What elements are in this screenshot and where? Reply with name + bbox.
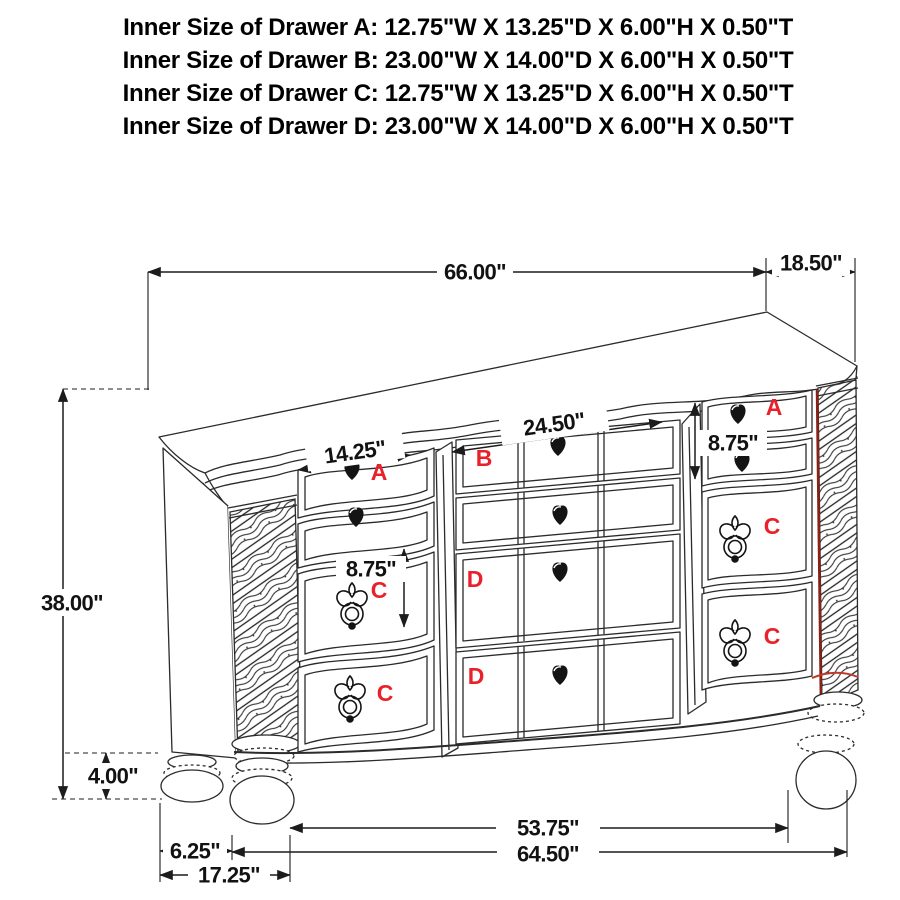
left-spiral-column xyxy=(228,495,302,764)
front-left-foot xyxy=(230,758,294,824)
dim-side-foot-inset: 6.25" xyxy=(170,839,220,864)
drawer-label-a-right: A xyxy=(766,394,783,420)
dresser-dimension-diagram-page: Inner Size of Drawer A: 12.75"W X 13.25"… xyxy=(0,0,900,900)
spec-header: Inner Size of Drawer A: 12.75"W X 13.25"… xyxy=(123,14,794,140)
dim-right-drawer-stack-height: 8.75" xyxy=(708,431,758,456)
dim-overall-width: 66.00" xyxy=(444,260,506,285)
drawer-label-d-middle: D xyxy=(467,566,484,592)
side-left-foot xyxy=(161,755,223,802)
drawer-label-c-right-bottom: C xyxy=(764,623,781,649)
drawer-label-a-left: A xyxy=(371,459,388,485)
dresser-drawing xyxy=(159,312,864,824)
drawer-label-c-right-middle: C xyxy=(764,513,781,539)
spec-line-drawer-b: Inner Size of Drawer B: 23.00"W X 14.00"… xyxy=(123,47,794,74)
spec-line-drawer-a: Inner Size of Drawer A: 12.75"W X 13.25"… xyxy=(123,14,794,41)
dim-overall-height: 38.00" xyxy=(41,591,103,616)
dresser-diagram-svg: Inner Size of Drawer A: 12.75"W X 13.25"… xyxy=(0,0,900,900)
dim-foot-height: 4.00" xyxy=(88,764,138,789)
spec-line-drawer-c: Inner Size of Drawer C: 12.75"W X 13.25"… xyxy=(123,80,794,107)
left-side-panel xyxy=(163,448,236,758)
drawer-label-c-left-middle: C xyxy=(371,577,388,603)
dim-front-feet-span: 53.75" xyxy=(517,816,579,841)
dim-base-width: 64.50" xyxy=(517,842,579,867)
drawer-label-c-left-bottom: C xyxy=(377,680,394,706)
drawer-label-d-bottom: D xyxy=(468,663,485,689)
dim-top-depth: 18.50" xyxy=(780,251,842,276)
spec-line-drawer-d: Inner Size of Drawer D: 23.00"W X 14.00"… xyxy=(123,113,794,140)
drawer-label-b-center: B xyxy=(476,445,493,471)
dim-front-foot-inset: 17.25" xyxy=(198,863,260,888)
